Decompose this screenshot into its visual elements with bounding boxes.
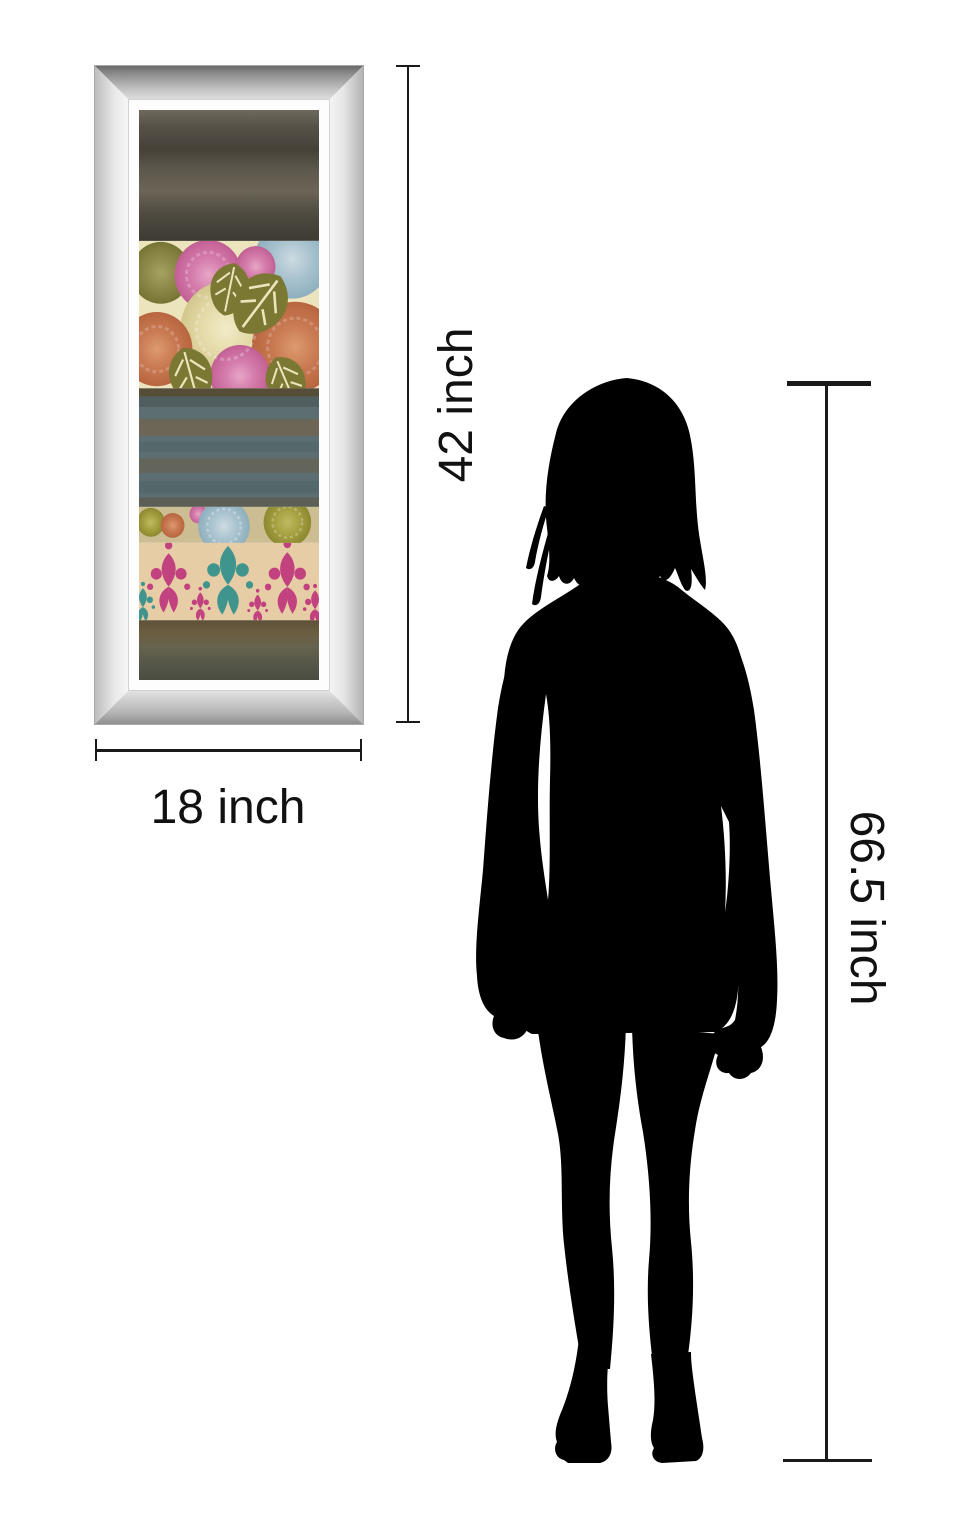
frame-bevel-bottom [95,691,363,724]
woman-silhouette [458,376,790,1466]
person-dimension-tick-bottom [783,1459,872,1462]
frame-bevel-left [95,66,128,724]
art-band-damask [139,533,319,624]
framed-wall-art [95,66,363,724]
art-panel-graphic [139,110,319,680]
height-dimension-tick-top [396,65,420,67]
art-divider-stripe [139,388,319,396]
person-dimension-tick-top [787,381,871,386]
frame-bevel-right [330,66,363,724]
width-dimension-tick-left [95,739,97,761]
frame-bevel-top [95,66,363,99]
woman-silhouette-graphic [458,376,790,1466]
art-panel [139,110,319,680]
product-dimension-diagram: 42 inch 18 inch [0,0,972,1536]
width-label: 18 inch [151,784,306,832]
art-band-top-dark [139,110,319,241]
person-height-label: 66.5 inch [842,811,890,1006]
width-dimension-tick-right [360,739,362,761]
height-dimension-line [407,66,409,723]
art-band-floral [139,220,319,414]
art-band-bottom-dark [139,620,319,680]
art-band-stripes [139,397,319,507]
person-dimension-line [825,383,828,1461]
width-dimension-line [96,749,362,752]
height-dimension-tick-bottom [396,721,420,723]
